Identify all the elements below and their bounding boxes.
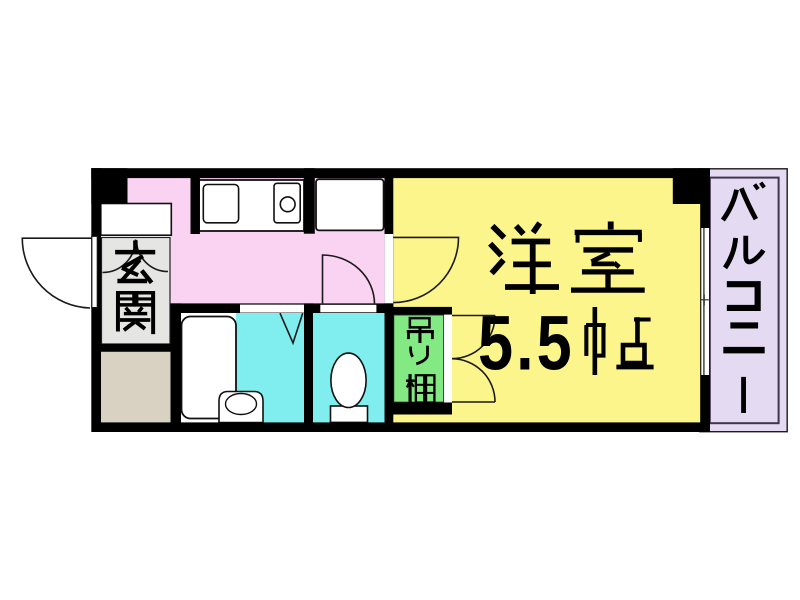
svg-text:5.5: 5.5	[478, 300, 575, 386]
